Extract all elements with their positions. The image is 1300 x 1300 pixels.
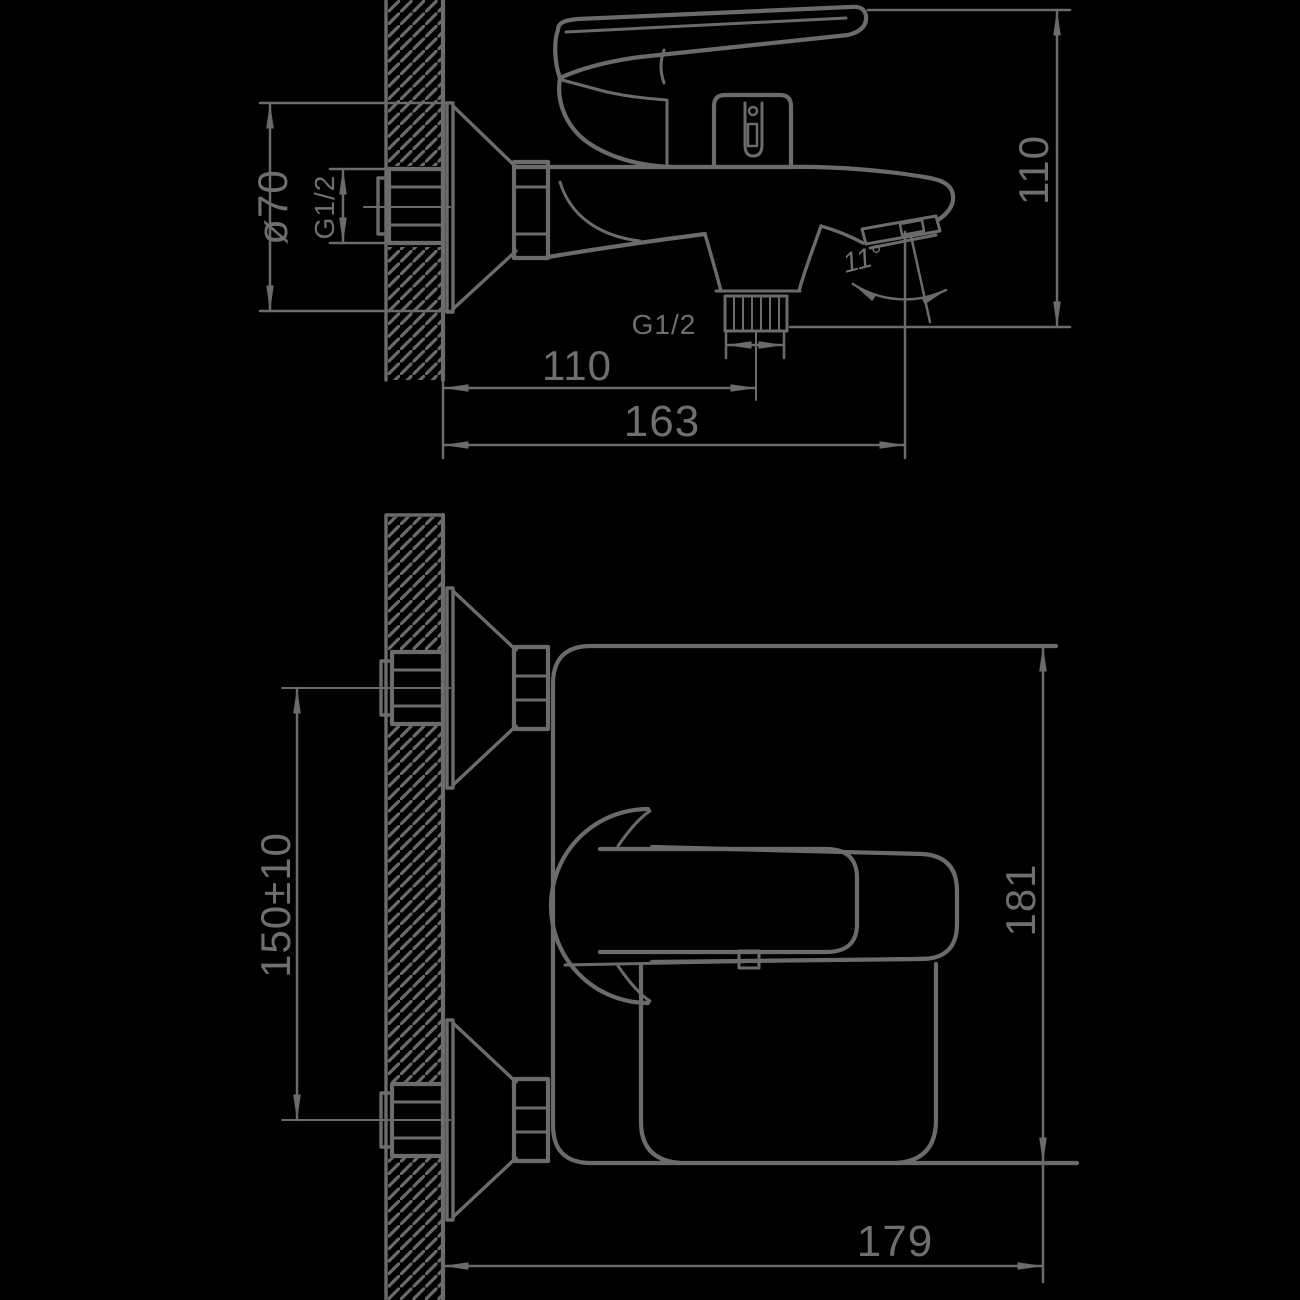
side-view: G1/2 ø70 xyxy=(249,0,1070,458)
outlet-thread-label: G1/2 xyxy=(632,309,697,340)
escutcheon-side xyxy=(447,103,548,312)
wall-to-spout-tip-label: 163 xyxy=(624,397,700,446)
inlet-thread-label: G1/2 xyxy=(309,175,340,240)
wall-section-2 xyxy=(386,515,443,1300)
dim-overall-height-front: 181 xyxy=(997,646,1044,1282)
spout-angle-label: 11° xyxy=(839,239,886,279)
dim-spout-angle: 11° xyxy=(839,232,946,458)
overall-height-front-label: 181 xyxy=(997,863,1044,936)
inlet-spacing-label: 150±10 xyxy=(252,832,299,978)
escutcheon-diameter-label: ø70 xyxy=(249,169,296,244)
dim-inlet-spacing: 150±10 xyxy=(252,688,299,1120)
wall-to-outlet-label: 110 xyxy=(542,342,612,389)
dim-wall-to-spout-tip: 163 xyxy=(443,397,905,446)
front-view: 150±10 181 179 xyxy=(252,515,1077,1300)
technical-drawing: G1/2 ø70 xyxy=(0,0,1300,1300)
dim-overall-depth: 179 xyxy=(443,1217,1043,1266)
overall-height-side-label: 110 xyxy=(1010,135,1057,205)
overall-depth-label: 179 xyxy=(857,1217,933,1266)
wall-inlet-fitting xyxy=(364,169,450,243)
wall-section xyxy=(386,0,443,458)
dim-wall-to-outlet: 110 xyxy=(443,342,756,389)
